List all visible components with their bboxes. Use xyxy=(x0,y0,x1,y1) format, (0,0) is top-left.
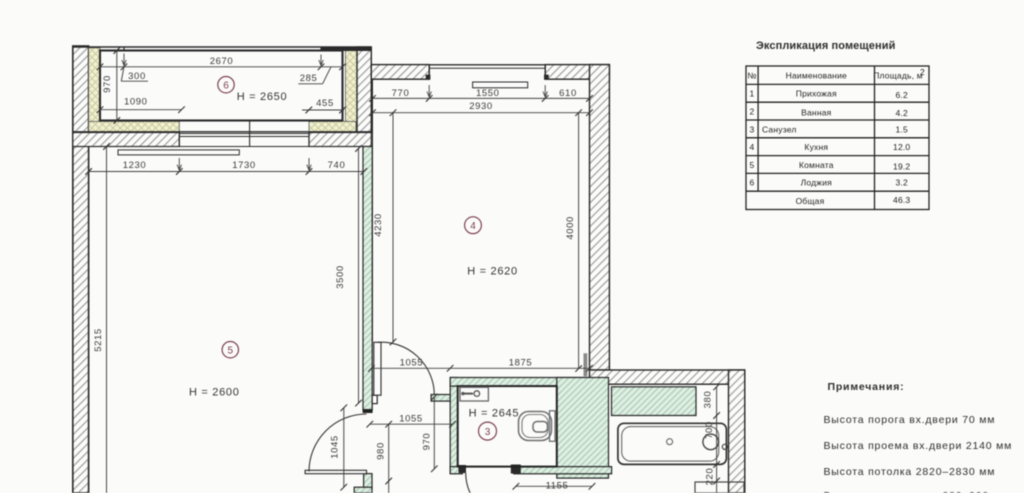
svg-text:5: 5 xyxy=(750,160,755,170)
svg-text:3: 3 xyxy=(750,124,755,134)
svg-text:6.2: 6.2 xyxy=(895,90,907,100)
svg-text:6: 6 xyxy=(750,178,755,188)
svg-text:770: 770 xyxy=(392,88,410,99)
svg-text:2930: 2930 xyxy=(469,101,493,112)
svg-text:610: 610 xyxy=(559,88,577,99)
svg-text:Высота проема вх.двери 2140 мм: Высота проема вх.двери 2140 мм xyxy=(824,440,1013,452)
svg-text:Ванная: Ванная xyxy=(801,108,832,118)
svg-text:Высота потолка 2820–2830 мм: Высота потолка 2820–2830 мм xyxy=(824,466,996,478)
svg-text:300: 300 xyxy=(128,71,146,82)
svg-text:12.0: 12.0 xyxy=(893,142,910,152)
svg-text:4230: 4230 xyxy=(373,213,384,237)
svg-text:№: № xyxy=(747,70,756,80)
svg-text:Площадь, м: Площадь, м xyxy=(873,70,923,80)
svg-text:5: 5 xyxy=(228,346,234,357)
svg-text:1550: 1550 xyxy=(476,88,500,99)
svg-text:4000: 4000 xyxy=(565,216,576,240)
svg-text:Наименование: Наименование xyxy=(786,70,847,80)
svg-text:2670: 2670 xyxy=(210,56,234,67)
svg-text:3.2: 3.2 xyxy=(895,178,907,188)
svg-text:970: 970 xyxy=(102,75,113,93)
svg-text:Экспликация помещений: Экспликация помещений xyxy=(756,40,895,52)
svg-text:6: 6 xyxy=(223,81,229,92)
svg-text:Прихожая: Прихожая xyxy=(796,89,837,99)
svg-text:H = 2600: H = 2600 xyxy=(189,387,240,399)
svg-text:1230: 1230 xyxy=(123,160,147,171)
svg-text:1: 1 xyxy=(750,89,755,99)
svg-text:4: 4 xyxy=(470,221,476,232)
svg-text:46.3: 46.3 xyxy=(893,195,910,205)
svg-text:Кухня: Кухня xyxy=(804,142,828,152)
svg-text:Санузел: Санузел xyxy=(762,124,797,134)
svg-text:4: 4 xyxy=(750,142,755,152)
svg-text:1055: 1055 xyxy=(400,358,424,369)
svg-text:4.2: 4.2 xyxy=(895,108,907,118)
svg-text:285: 285 xyxy=(300,73,318,84)
svg-text:380: 380 xyxy=(703,391,714,409)
svg-text:1875: 1875 xyxy=(509,358,533,369)
svg-text:3500: 3500 xyxy=(335,265,346,289)
svg-text:1090: 1090 xyxy=(124,97,148,108)
svg-text:19.2: 19.2 xyxy=(893,161,910,171)
svg-text:700: 700 xyxy=(704,421,715,439)
svg-text:H = 2620: H = 2620 xyxy=(467,266,518,278)
svg-text:H = 2650: H = 2650 xyxy=(237,91,288,103)
svg-text:H = 2645: H = 2645 xyxy=(469,408,520,420)
svg-text:Примечания:: Примечания: xyxy=(828,381,905,393)
svg-text:970: 970 xyxy=(422,433,433,451)
svg-text:3: 3 xyxy=(485,427,491,438)
svg-text:Общая: Общая xyxy=(796,196,825,206)
svg-text:980: 980 xyxy=(375,442,386,460)
svg-text:220: 220 xyxy=(705,468,716,486)
svg-text:1055: 1055 xyxy=(399,413,423,424)
svg-text:1.5: 1.5 xyxy=(895,124,907,134)
svg-text:Лоджия: Лоджия xyxy=(801,178,833,188)
svg-text:740: 740 xyxy=(328,160,346,171)
svg-text:5215: 5215 xyxy=(93,328,104,352)
svg-text:455: 455 xyxy=(316,98,334,109)
svg-text:2: 2 xyxy=(920,67,925,77)
svg-text:Комната: Комната xyxy=(799,160,834,170)
svg-text:1730: 1730 xyxy=(232,160,256,171)
svg-text:2: 2 xyxy=(750,107,755,117)
svg-text:1155: 1155 xyxy=(546,480,569,491)
svg-text:Высота порога вх.двери 70 мм: Высота порога вх.двери 70 мм xyxy=(824,414,996,426)
svg-text:1045: 1045 xyxy=(330,435,341,459)
